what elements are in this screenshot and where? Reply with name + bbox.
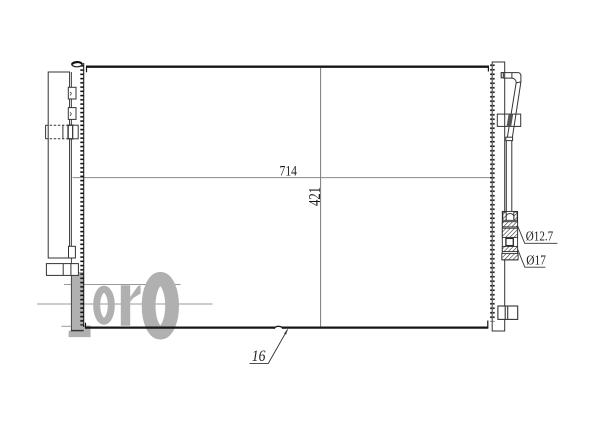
- svg-text:Ø17: Ø17: [526, 254, 546, 269]
- svg-text:714: 714: [280, 164, 298, 180]
- svg-text:421: 421: [305, 187, 324, 206]
- svg-text:Ø12.7: Ø12.7: [526, 229, 553, 244]
- svg-text:16: 16: [252, 348, 266, 365]
